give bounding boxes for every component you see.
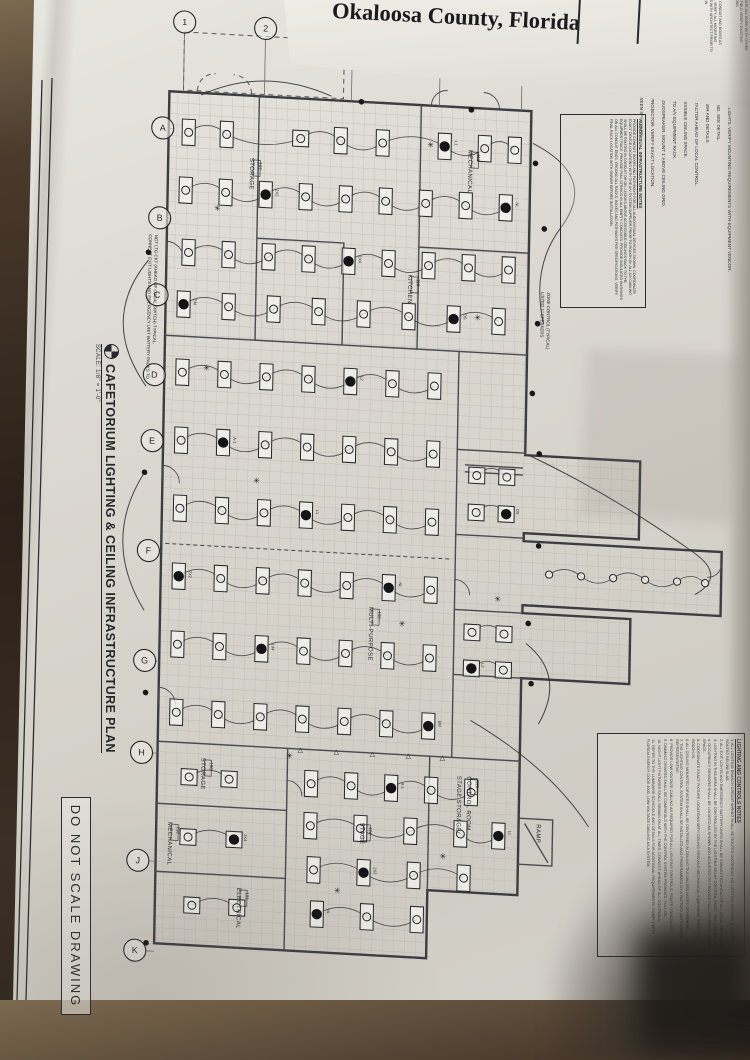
lighting-note-item: 8. PROVIDE LOW VOLTAGE CABLING AS REQUIR…: [668, 739, 673, 951]
photo-frame: △△△ △△ 12345ABCDEFGHJKL12X2NL1X4EMOSL2A-…: [0, 0, 750, 1000]
light-fixture-2x4: [260, 363, 273, 390]
av-notes-body: PROVIDE CONDUIT, BOXES AND PATHWAYS FOR …: [609, 119, 637, 303]
light-fixture-2x2: [293, 130, 309, 147]
light-fixture-2x4: [382, 250, 395, 277]
room-number: 107: [258, 162, 263, 170]
svg-text:1: 1: [182, 17, 187, 27]
light-fixture-2x2: [184, 897, 200, 914]
special-fixture-symbol: ✳: [494, 595, 501, 604]
light-fixture-2x4: [462, 254, 475, 281]
svg-text:2: 2: [263, 23, 268, 33]
fixture-tag: EM: [193, 299, 198, 305]
room-number: 113: [476, 154, 481, 162]
light-fixture-2x4: [307, 857, 320, 884]
light-fixture-2x4: [379, 188, 392, 215]
light-fixture-2x4: [357, 301, 370, 328]
page-bleedthrough-ghost: [579, 348, 740, 524]
light-fixture-2x4: [299, 183, 312, 210]
svg-text:K: K: [132, 945, 138, 955]
lighting-notes-title: LIGHTING AND CONTROLS NOTES: [735, 739, 740, 951]
lighting-note-item: 11. REFER TO THE LUMINAIRE SCHEDULE AND …: [645, 739, 655, 951]
title-divider-bar: [637, 0, 642, 44]
room-number: 126: [475, 781, 480, 789]
light-fixture-2x4: [182, 119, 195, 146]
special-fixture-symbol: ✳: [474, 313, 481, 322]
light-fixture-2x4: [419, 190, 432, 217]
light-fixture-2x4: [492, 308, 505, 335]
light-fixture-2x4: [304, 812, 317, 839]
light-fixture-2x4: [502, 257, 515, 284]
lighting-note-item: 2. ALL EXIT LIGHTS AND EMERGENCY BATTERY…: [718, 739, 723, 951]
light-fixture-2x4: [267, 296, 280, 323]
fixture-tag: OS: [463, 314, 468, 320]
room-number: 110: [416, 279, 421, 287]
room-number: 124: [368, 827, 373, 835]
svg-text:B: B: [157, 213, 163, 223]
light-fixture-2x2: [499, 469, 515, 486]
light-fixture-2x4: [339, 186, 352, 213]
lighting-note-item: 3. LIGHTING IN THIS AREA SHALL BE CONTRO…: [712, 739, 717, 951]
svg-text:△: △: [298, 747, 304, 754]
light-fixture-2x4: [344, 773, 357, 800]
light-fixture-2x4: [302, 246, 315, 273]
light-fixture-2x4: [383, 506, 396, 533]
light-fixture-2x4: [218, 361, 231, 388]
svg-text:H: H: [138, 747, 145, 757]
fixture-tag: A-1: [232, 437, 237, 444]
plan-note: CONNECT EXIT LIGHTS AND EMERGENCY UNIT B…: [145, 234, 153, 379]
downlight-fixture: [673, 578, 680, 586]
light-fixture-2x4: [304, 770, 317, 797]
fixture-tag: A-1: [400, 783, 405, 790]
light-fixture-2x4: [334, 127, 347, 154]
svg-text:A: A: [160, 123, 166, 133]
svg-text:E: E: [149, 435, 155, 445]
fixture-tag: 1X4: [270, 643, 275, 651]
light-fixture-2x4: [298, 570, 311, 597]
light-fixture-2x4: [508, 137, 521, 164]
light-fixture-2x2: [496, 626, 512, 643]
light-fixture-2x4: [212, 701, 225, 728]
drawing-title-block: CAFETORIUM LIGHTING & CEILING INFRASTRUC…: [94, 344, 119, 676]
light-fixture-2x4: [402, 303, 415, 330]
light-fixture-2x2: [468, 504, 484, 521]
drawing-scale: SCALE: 1/8" = 1'-0": [94, 344, 100, 676]
room-number: 130: [209, 762, 214, 770]
light-fixture-2x4: [425, 509, 438, 536]
county-title: Okaloosa County, Florida: [332, 0, 581, 36]
light-fixture-2x4: [376, 130, 389, 157]
light-fixture-2x4: [360, 904, 373, 931]
fixture-tag: 2X2: [188, 571, 193, 579]
light-fixture-2x4: [214, 565, 227, 592]
svg-text:F: F: [146, 545, 152, 555]
light-fixture-2x2: [464, 624, 480, 641]
light-fixture-2x4: [254, 703, 267, 730]
room-number: 131: [244, 892, 249, 900]
light-fixture-2x4: [380, 710, 393, 737]
light-fixture-2x4: [457, 865, 470, 892]
fixture-tag: 1X4: [358, 256, 363, 264]
photo-of-electrical-plan-sheet: { "photo": { "header": { "line1_partial"…: [0, 0, 750, 1000]
special-fixture-symbol: ✳: [439, 852, 446, 861]
junction-box: [533, 160, 539, 166]
light-fixture-2x4: [302, 366, 315, 393]
light-fixture-2x4: [340, 572, 353, 599]
drawing-title: CAFETORIUM LIGHTING & CEILING INFRASTRUC…: [101, 344, 119, 753]
light-fixture-2x4: [407, 862, 420, 889]
light-fixture-2x4: [339, 640, 352, 667]
light-fixture-2x4: [341, 504, 354, 531]
light-fixture-2x4: [384, 438, 397, 465]
light-fixture-2x4: [422, 252, 435, 279]
light-fixture-2x2: [180, 829, 196, 846]
special-fixture-symbol: ✳: [286, 751, 293, 760]
junction-box: [143, 690, 149, 696]
light-fixture-2x4: [213, 633, 226, 660]
light-fixture-2x4: [258, 431, 271, 458]
light-fixture-2x4: [222, 241, 235, 268]
light-fixture-2x4: [222, 293, 235, 320]
special-fixture-symbol: ✳: [214, 204, 221, 213]
fixture-tag: OS: [515, 509, 520, 515]
light-fixture-2x2: [469, 467, 485, 484]
svg-text:D: D: [151, 370, 158, 380]
lighting-note-item: 1. ALL LIGHTING BRANCH CIRCUIT WIRING SH…: [724, 739, 734, 951]
light-fixture-2x4: [297, 638, 310, 665]
light-fixture-2x4: [381, 642, 394, 669]
fixture-tag: 2X2: [275, 189, 280, 197]
plan-note: LISTED 1" SPEAKERS: [539, 292, 545, 338]
light-fixture-2x4: [173, 495, 186, 522]
svg-text:△: △: [406, 753, 412, 760]
downlight-fixture: [609, 574, 616, 582]
svg-text:△: △: [440, 755, 446, 762]
downlight-fixture: [641, 576, 648, 584]
light-fixture-2x4: [215, 497, 228, 524]
lighting-note-item: 7. THE LIGHTING CONTROL SYSTEM SHALL BE …: [674, 739, 684, 951]
camera-shadow-core: [640, 930, 750, 1050]
lighting-note-item: 10. NIGHT LIGHT FIXTURES SHALL REMAIN ON…: [656, 739, 661, 951]
light-fixture-2x4: [410, 906, 423, 933]
downlight-fixture: [545, 571, 552, 579]
room-number: 132: [176, 826, 181, 834]
special-fixture-symbol: ✳: [427, 140, 434, 149]
light-fixture-2x4: [179, 177, 192, 204]
svg-text:J: J: [135, 855, 140, 865]
plan-note: ZONE CONTROL (TYPICAL): [545, 292, 551, 350]
light-fixture-2x4: [404, 818, 417, 845]
light-fixture-2x4: [174, 427, 187, 454]
lighting-note-item: 9. DIMMING DRIVERS SHALL BE COMPATIBLE W…: [662, 739, 667, 951]
light-fixture-2x4: [257, 499, 270, 526]
light-fixture-2x4: [424, 577, 437, 604]
junction-box: [142, 469, 148, 475]
light-fixture-2x4: [219, 179, 232, 206]
light-fixture-2x4: [300, 434, 313, 461]
room-number: 102: [377, 611, 382, 619]
svg-text:△: △: [370, 751, 376, 758]
light-fixture-2x4: [262, 243, 275, 270]
special-fixture-symbol: ✳: [334, 886, 341, 895]
light-fixture-2x4: [220, 121, 233, 148]
light-fixture-2x4: [428, 373, 441, 400]
light-fixture-2x4: [312, 298, 325, 325]
light-fixture-2x4: [423, 645, 436, 672]
light-fixture-2x4: [256, 567, 269, 594]
fixture-tag: EM: [437, 721, 442, 727]
light-fixture-2x4: [176, 359, 189, 386]
light-fixture-2x4: [342, 436, 355, 463]
lighting-note-item: 4. OCCUPANCY SENSORS SHALL BE LOCATED AS…: [701, 739, 711, 951]
title-divider-bar: [577, 0, 582, 44]
junction-box: [528, 681, 534, 687]
room-label: RAMP: [534, 824, 540, 843]
light-fixture-2x4: [171, 631, 184, 658]
av-infrastructure-notes: AUDIO/VISUAL INFRASTRUCTURE NOTES PROVID…: [560, 114, 646, 308]
sheet-border-lines: [17, 78, 52, 1000]
adjacent-sheet-note: COORDINATE ALL WORK WITH OTHER TRADES. F…: [734, 0, 748, 54]
light-fixture-2x4: [182, 239, 195, 266]
junction-box: [541, 226, 547, 232]
light-fixture-2x4: [386, 370, 399, 397]
north-detail-marker-icon: [104, 344, 119, 359]
light-fixture-2x2: [495, 662, 511, 679]
svg-text:G: G: [141, 655, 148, 665]
light-fixture-2x4: [338, 708, 351, 735]
light-fixture-2x4: [459, 192, 472, 219]
special-fixture-symbol: ✳: [203, 363, 210, 372]
light-fixture-2x4: [424, 777, 437, 804]
room-label: STAGE STORAGE/: [454, 776, 461, 834]
lighting-controls-notes: LIGHTING AND CONTROLS NOTES 1. ALL LIGHT…: [597, 733, 745, 957]
junction-box: [529, 391, 535, 397]
fixture-tag: 1X4: [243, 834, 248, 842]
adjacent-sheet-note: INSTALL CONDUIT AND BOXES AS SHOWN. VERI…: [704, 0, 722, 56]
light-fixture-2x4: [296, 706, 309, 733]
special-fixture-symbol: ✳: [253, 476, 260, 485]
svg-text:△: △: [334, 749, 340, 756]
lighting-note-item: 5. COORDINATE EXACT FIXTURE LOCATIONS WI…: [690, 739, 700, 951]
lighting-note-item: 6. ALL CEILING MOUNTED DEVICES SHALL BE …: [684, 739, 689, 951]
light-fixture-2x2: [181, 769, 197, 786]
light-fixture-2x2: [221, 771, 237, 788]
special-fixture-symbol: ✳: [399, 619, 406, 628]
do-not-scale-stamp: DO NOT SCALE DRAWING: [61, 797, 91, 1015]
downlight-fixture: [701, 579, 708, 587]
av-notes-title: AUDIO/VISUAL INFRASTRUCTURE NOTES: [637, 119, 642, 303]
light-fixture-2x4: [170, 699, 183, 726]
fixture-tag: 2X2: [373, 867, 378, 875]
light-fixture-2x4: [426, 441, 439, 468]
downlight-fixture: [577, 573, 584, 581]
